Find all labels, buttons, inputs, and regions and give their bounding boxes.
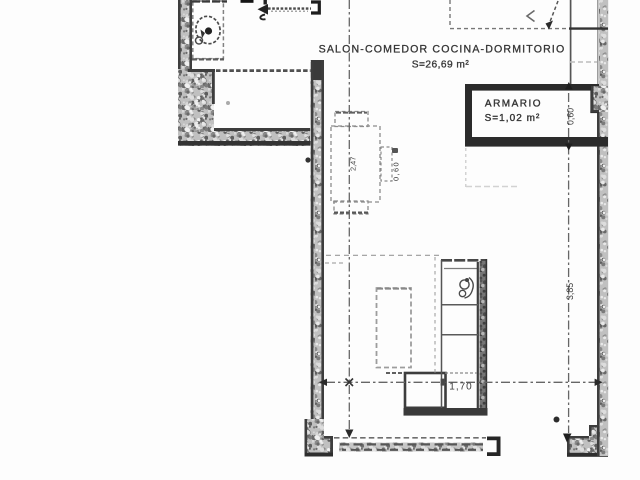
- svg-text:2,47: 2,47: [349, 157, 358, 171]
- svg-text:0,60: 0,60: [392, 161, 401, 181]
- svg-text:1,70: 1,70: [449, 382, 472, 393]
- svg-text:ARMARIO: ARMARIO: [485, 99, 542, 110]
- svg-text:SALON-COMEDOR COCINA-DORMITORI: SALON-COMEDOR COCINA-DORMITORIO: [319, 44, 566, 56]
- svg-text:0,60: 0,60: [566, 108, 576, 125]
- svg-text:3,85: 3,85: [565, 283, 575, 300]
- svg-text:S=26,69 m²: S=26,69 m²: [412, 60, 470, 71]
- svg-text:S=1,02 m²: S=1,02 m²: [485, 113, 541, 124]
